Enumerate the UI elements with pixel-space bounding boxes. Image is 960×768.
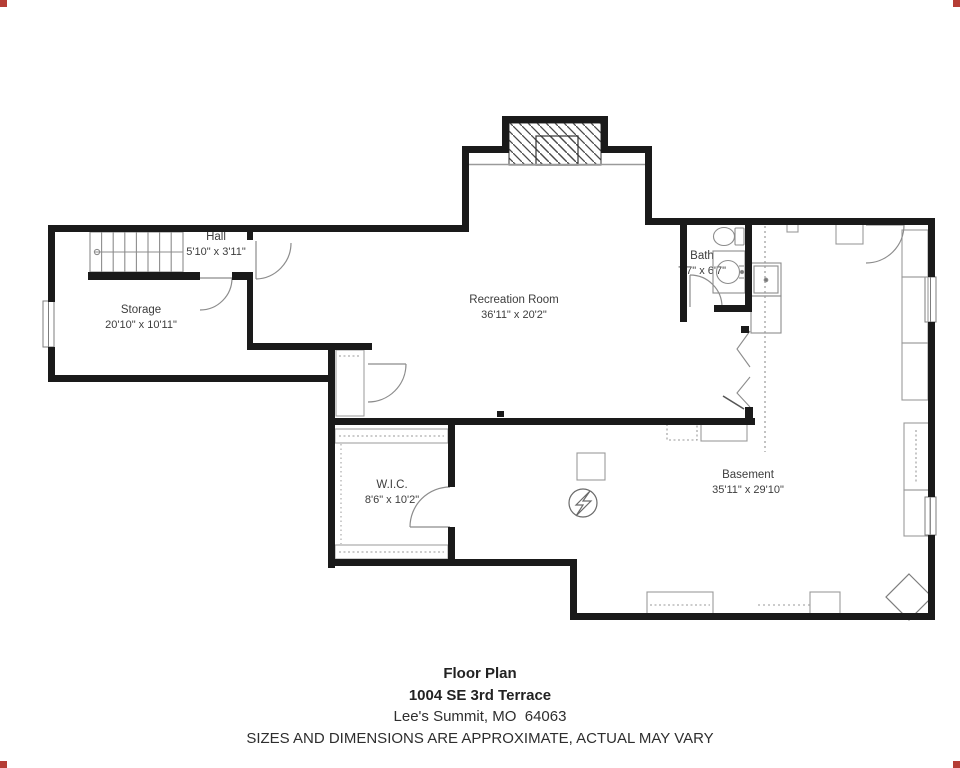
bath-fixtures [713,228,745,294]
stairs [90,232,183,272]
window [43,277,936,535]
plan-address: 1004 SE 3rd Terrace [0,685,960,707]
basement-benches [577,424,840,618]
corner-mark [953,761,960,768]
plan-city: Lee's Summit, MO 64063 [0,706,960,728]
corner-mark [953,0,960,7]
electrical-panel-icon [569,489,597,517]
corner-mark [0,0,7,7]
plan-title: Floor Plan [0,663,960,685]
walls [48,116,935,620]
utility-sink [751,263,781,333]
fireplace [469,123,645,165]
floor-plan-drawing [0,0,960,650]
basement-cabinets [787,219,930,536]
chase-zigzag [723,331,750,409]
floor-plan-page: Hall 5'10" x 3'11" Storage 20'10" x 10'1… [0,0,960,768]
corner-mark [0,761,7,768]
toilet-icon [735,228,744,245]
closet-shelves [335,350,448,559]
plan-disclaimer: SIZES AND DIMENSIONS ARE APPROXIMATE, AC… [0,728,960,750]
footer-caption: Floor Plan 1004 SE 3rd Terrace Lee's Sum… [0,663,960,749]
